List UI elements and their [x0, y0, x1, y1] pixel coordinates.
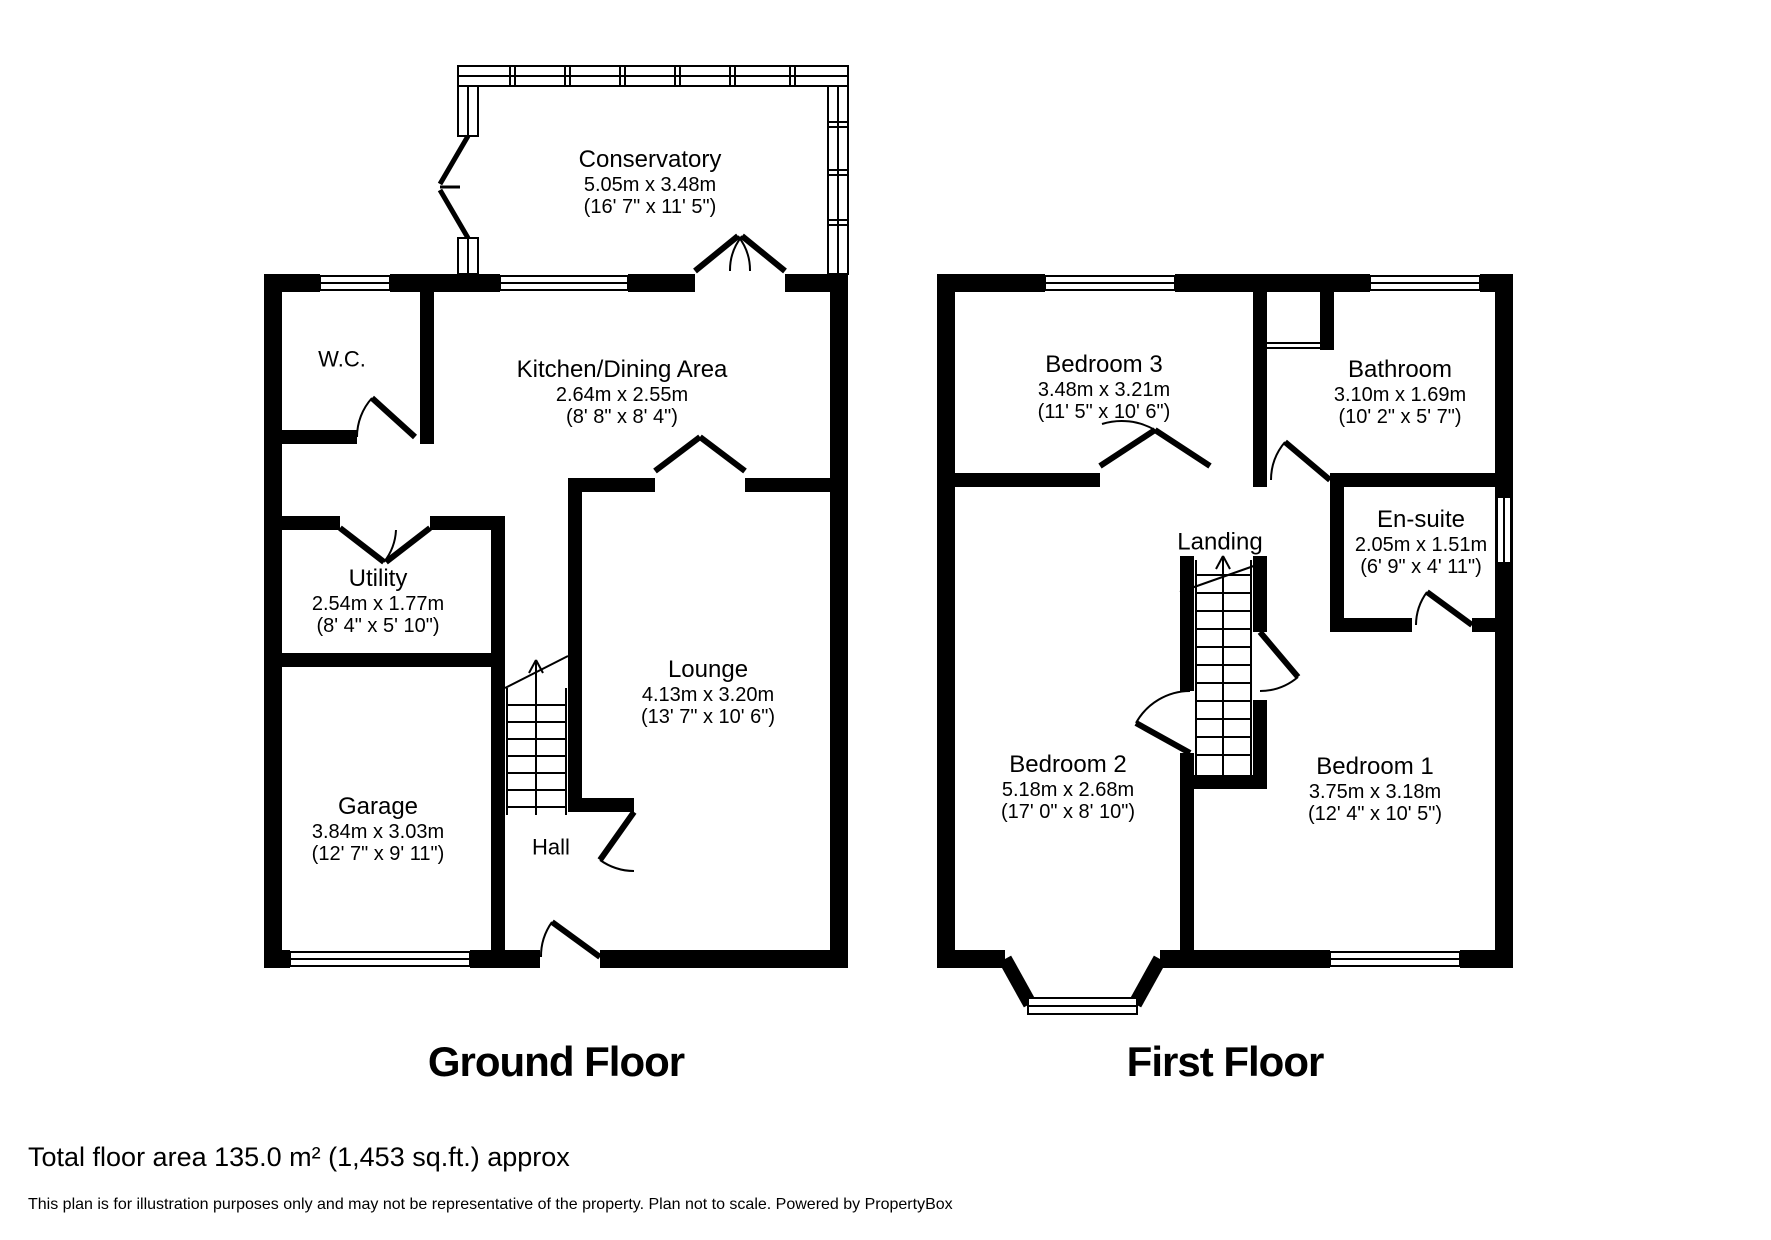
room-dim-metric: 5.05m x 3.48m: [579, 174, 722, 196]
room-dim-metric: 3.84m x 3.03m: [312, 821, 445, 843]
room-dim-imperial: (11' 5" x 10' 6"): [1038, 401, 1171, 423]
bedroom2-bay-window: [1005, 959, 1160, 1014]
room-name: Garage: [312, 794, 445, 821]
room-dim-imperial: (6' 9" x 4' 11"): [1355, 556, 1487, 578]
room-dim-metric: 4.13m x 3.20m: [641, 684, 775, 706]
room-label-bedroom1: Bedroom 1 3.75m x 3.18m (12' 4" x 10' 5"…: [1308, 754, 1442, 826]
room-name: W.C.: [318, 348, 366, 373]
room-name: Bedroom 2: [1001, 752, 1135, 779]
floorplan-page: Conservatory 5.05m x 3.48m (16' 7" x 11'…: [0, 0, 1771, 1240]
room-dim-imperial: (16' 7" x 11' 5"): [579, 196, 722, 218]
room-name: Kitchen/Dining Area: [517, 357, 728, 384]
room-label-wc: W.C.: [318, 348, 366, 373]
room-label-bedroom2: Bedroom 2 5.18m x 2.68m (17' 0" x 8' 10"…: [1001, 752, 1135, 824]
room-dim-imperial: (12' 4" x 10' 5"): [1308, 803, 1442, 825]
room-dim-imperial: (12' 7" x 9' 11"): [312, 843, 445, 865]
room-label-lounge: Lounge 4.13m x 3.20m (13' 7" x 10' 6"): [641, 657, 775, 729]
room-label-bedroom3: Bedroom 3 3.48m x 3.21m (11' 5" x 10' 6"…: [1038, 352, 1171, 424]
room-name: Bedroom 1: [1308, 754, 1442, 781]
room-label-kitchen: Kitchen/Dining Area 2.64m x 2.55m (8' 8"…: [517, 357, 728, 429]
room-dim-metric: 3.48m x 3.21m: [1038, 379, 1171, 401]
room-name: Utility: [312, 566, 444, 593]
first-floor-title: First Floor: [1127, 1038, 1324, 1086]
room-name: Landing: [1177, 530, 1262, 557]
room-name: Bedroom 3: [1038, 352, 1171, 379]
room-label-landing: Landing: [1177, 530, 1262, 557]
floorplan-drawing: [0, 0, 1771, 1240]
ground-floor-title: Ground Floor: [428, 1038, 684, 1086]
room-name: En-suite: [1355, 507, 1487, 534]
room-name: Hall: [532, 836, 570, 861]
room-label-bathroom: Bathroom 3.10m x 1.69m (10' 2" x 5' 7"): [1334, 357, 1466, 429]
room-dim-imperial: (17' 0" x 8' 10"): [1001, 801, 1135, 823]
ground-floor-staircase: [505, 656, 568, 815]
room-dim-imperial: (10' 2" x 5' 7"): [1334, 406, 1466, 428]
room-label-hall: Hall: [532, 836, 570, 861]
room-dim-metric: 3.75m x 3.18m: [1308, 781, 1442, 803]
conservatory-door: [440, 136, 468, 238]
room-name: Lounge: [641, 657, 775, 684]
room-label-utility: Utility 2.54m x 1.77m (8' 4" x 5' 10"): [312, 566, 444, 638]
room-dim-metric: 5.18m x 2.68m: [1001, 779, 1135, 801]
room-label-ensuite: En-suite 2.05m x 1.51m (6' 9" x 4' 11"): [1355, 507, 1487, 579]
room-name: Bathroom: [1334, 357, 1466, 384]
room-label-conservatory: Conservatory 5.05m x 3.48m (16' 7" x 11'…: [579, 147, 722, 219]
room-name: Conservatory: [579, 147, 722, 174]
room-dim-metric: 2.54m x 1.77m: [312, 593, 444, 615]
room-dim-metric: 2.64m x 2.55m: [517, 384, 728, 406]
room-dim-imperial: (8' 4" x 5' 10"): [312, 615, 444, 637]
room-label-garage: Garage 3.84m x 3.03m (12' 7" x 9' 11"): [312, 794, 445, 866]
total-floor-area-text: Total floor area 135.0 m² (1,453 sq.ft.)…: [28, 1142, 570, 1173]
room-dim-metric: 2.05m x 1.51m: [1355, 534, 1487, 556]
room-dim-metric: 3.10m x 1.69m: [1334, 384, 1466, 406]
room-dim-imperial: (8' 8" x 8' 4"): [517, 406, 728, 428]
disclaimer-text: This plan is for illustration purposes o…: [28, 1196, 953, 1214]
room-dim-imperial: (13' 7" x 10' 6"): [641, 706, 775, 728]
